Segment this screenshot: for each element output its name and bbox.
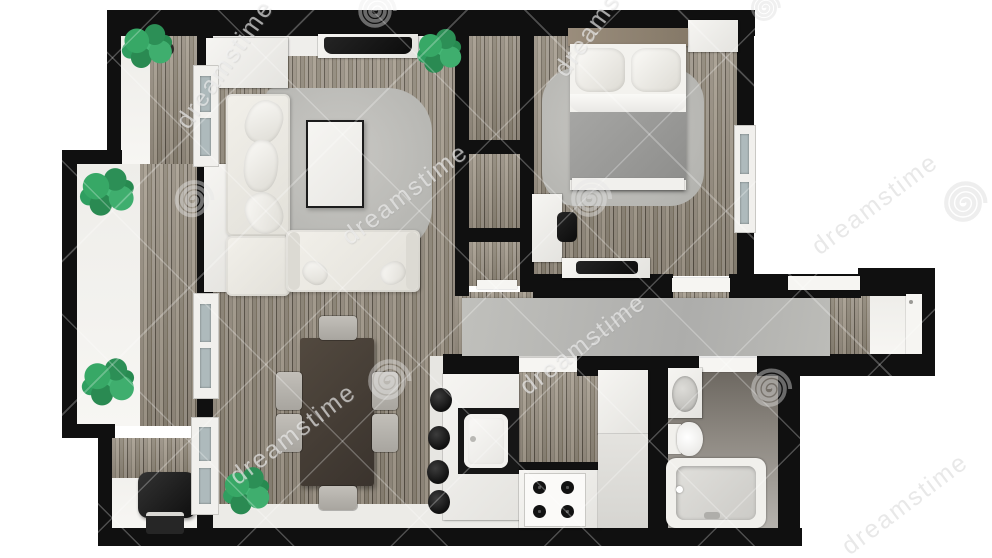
bar-stool-2 — [428, 426, 450, 450]
two-seat-sofa-armrest-right — [406, 232, 418, 290]
dining-chair-top — [319, 316, 357, 340]
corridor-runner-rug — [462, 298, 830, 356]
bathtub-faucet — [704, 512, 720, 519]
wall-left-mid — [62, 150, 77, 438]
bar-stool-4 — [428, 490, 450, 514]
wall-bathroom-left — [648, 354, 668, 546]
bbq-grill-tray — [146, 512, 184, 534]
stove-burner-3 — [533, 505, 546, 518]
balcony-window-2-pane — [200, 304, 211, 342]
dining-chair-right-2 — [372, 414, 398, 452]
closet-door-threshold — [477, 280, 517, 289]
dining-chair-left-2 — [276, 414, 302, 452]
wall-corridor-bottom-1 — [443, 354, 519, 376]
dining-plant — [222, 466, 272, 520]
dining-chair-right-1 — [372, 372, 398, 410]
toilet-bowl — [677, 422, 703, 456]
bedroom-window-pane — [740, 134, 749, 174]
bathroom-door-threshold — [699, 358, 757, 372]
kitchen-wood-strip — [519, 372, 599, 468]
balcony-window-3-pane — [199, 427, 211, 461]
balcony-window-1-pane — [200, 76, 211, 112]
wall-left-lower — [98, 426, 112, 538]
bar-stool-1 — [430, 388, 452, 412]
bed-pillow-right — [631, 48, 681, 92]
bed-pillow-left — [575, 48, 625, 92]
dining-chair-bottom — [319, 486, 357, 510]
balcony-window-2-pane-2 — [200, 348, 211, 388]
watermark-text: dreamstime — [836, 448, 974, 558]
floor-plan-render: dreamstime dreamstime dreamstime dreamst… — [0, 0, 992, 558]
balcony-window-3-pane-2 — [199, 468, 211, 504]
bathtub-knob — [676, 486, 683, 493]
kitchen-faucet — [470, 436, 476, 442]
corner-sofa-corner — [226, 236, 290, 296]
bed-footboard — [572, 178, 684, 190]
closet2-floor — [469, 154, 520, 228]
gas-stove — [525, 474, 585, 526]
stove-burner-4 — [561, 505, 574, 518]
bedroom-door-threshold — [672, 278, 730, 292]
watermark-text: dreamstime — [806, 148, 944, 262]
bathroom-basin — [672, 376, 698, 412]
stove-burner-1 — [533, 481, 546, 494]
corridor-window-lintel — [788, 276, 860, 290]
bed-blanket — [570, 112, 686, 180]
coffee-table — [306, 120, 364, 208]
bedroom-window — [735, 126, 755, 232]
wall-corridor-right — [922, 290, 935, 358]
balcony-plant-1 — [120, 24, 176, 72]
kitchen-fridge-cabinet — [598, 370, 648, 434]
balcony-window-1-pane-2 — [200, 118, 211, 156]
stove-counter-black-edge — [519, 462, 601, 470]
dining-chair-left-1 — [276, 372, 302, 410]
bedroom-tv — [576, 261, 638, 274]
watermark-logo-icon — [928, 168, 992, 238]
kitchen-door-threshold — [519, 358, 577, 372]
entry-door-handle — [909, 300, 913, 304]
kitchen-lower-cabinet — [598, 434, 648, 528]
wall-bedroom-right-upper — [737, 10, 754, 132]
stove-burner-2 — [561, 481, 574, 494]
balcony-window-2 — [194, 294, 218, 398]
balcony-mid-deck — [140, 164, 197, 426]
living-tv — [324, 37, 412, 54]
balcony-plant-2 — [78, 168, 138, 220]
balcony-plant-3 — [80, 358, 138, 410]
balcony-window-3 — [192, 418, 218, 514]
closet1-floor — [469, 22, 520, 140]
living-plant — [416, 28, 464, 78]
bedroom-desk-chair — [557, 212, 577, 242]
living-closet — [206, 38, 288, 88]
dining-table — [300, 338, 374, 486]
bedroom-closet — [688, 20, 738, 52]
two-seat-sofa-armrest-left — [288, 232, 300, 290]
wall-left-upper — [107, 10, 121, 162]
bedroom-window-pane-2 — [740, 182, 749, 224]
bar-stool-3 — [427, 460, 449, 484]
balcony-window-1 — [194, 66, 218, 166]
wall-bathroom-right — [778, 354, 800, 546]
